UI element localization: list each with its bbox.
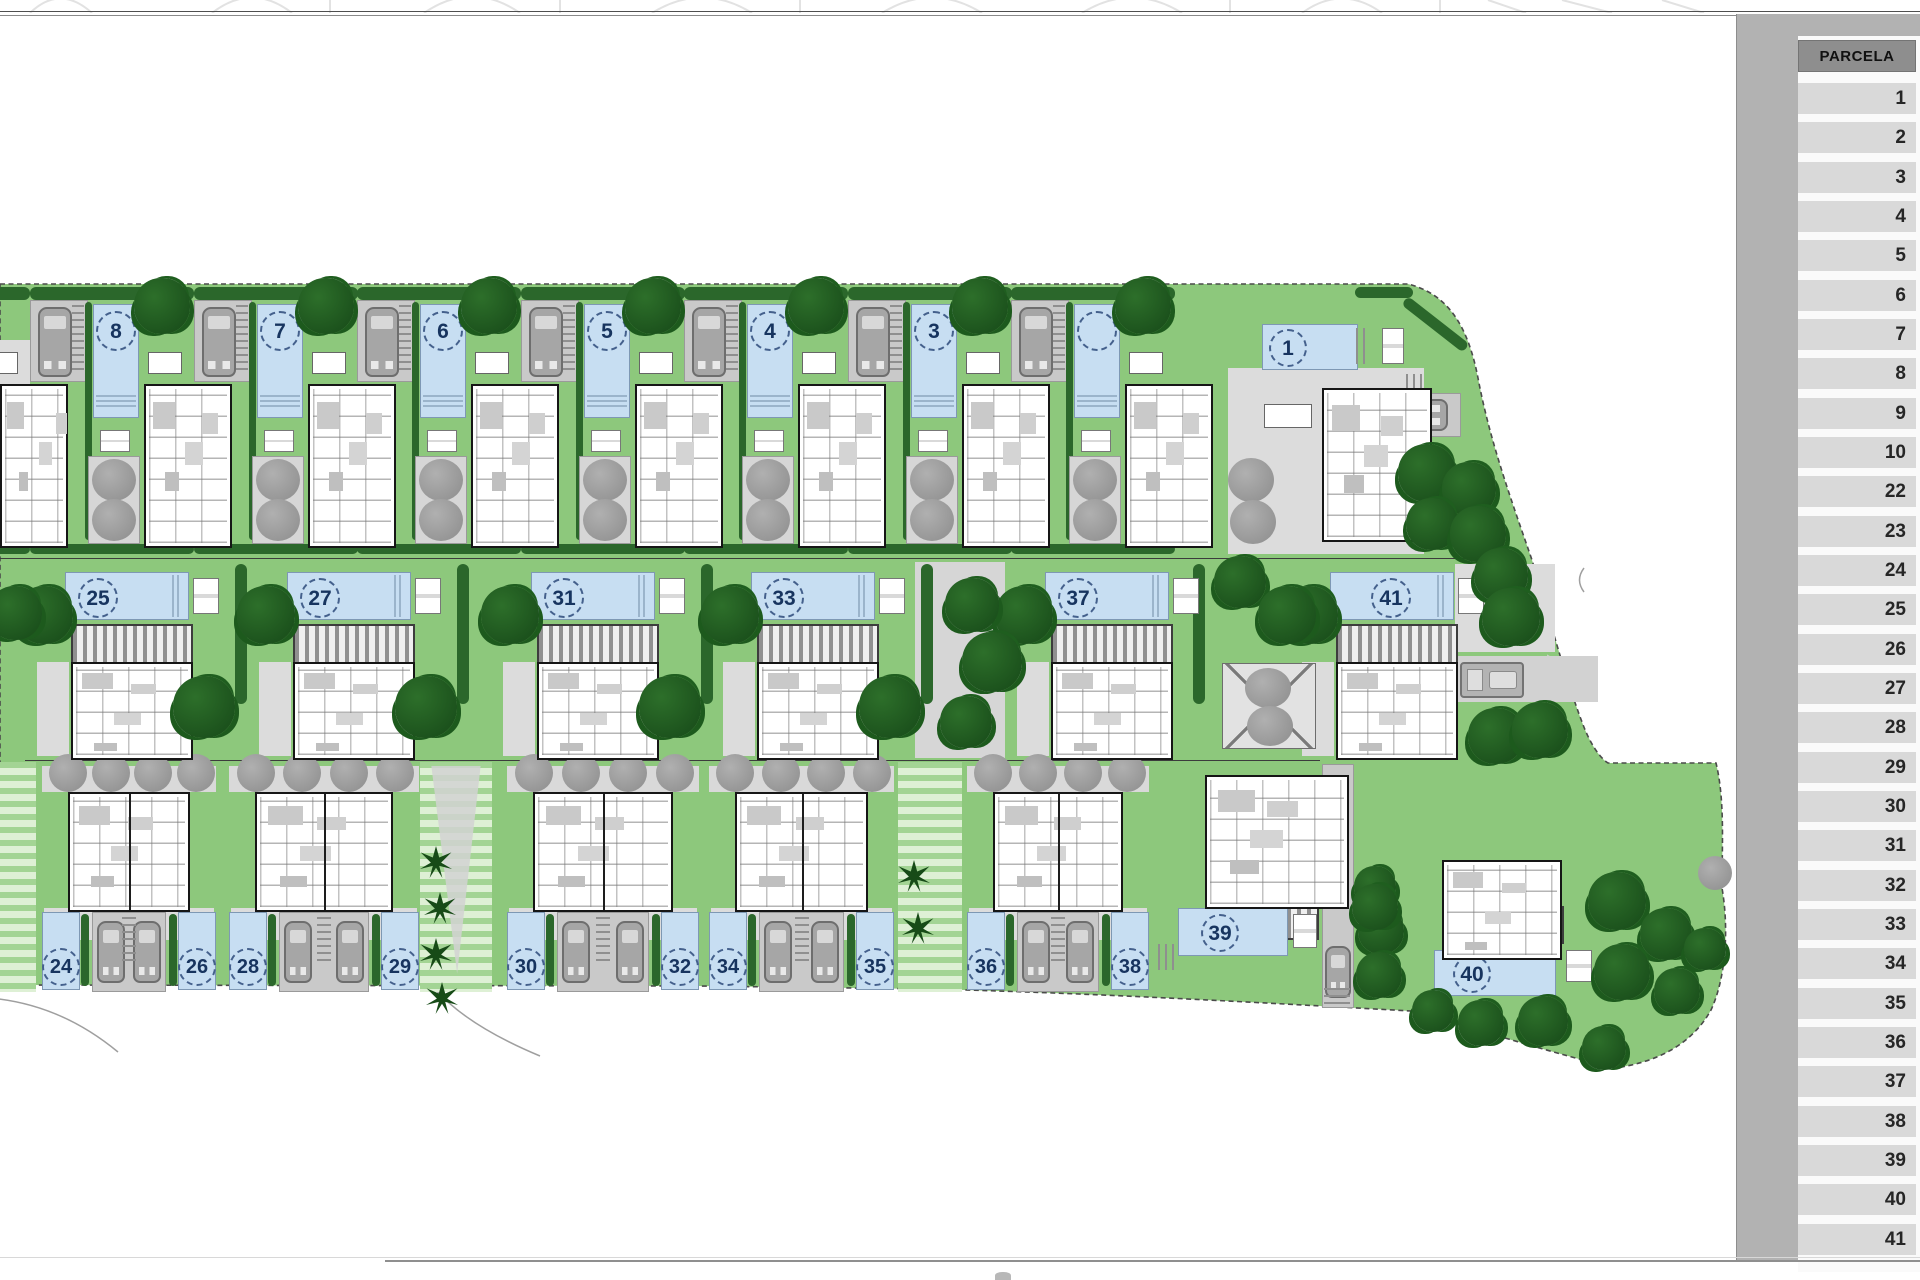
parcela-row: 36	[1798, 1027, 1916, 1058]
cutoff-mark	[995, 1272, 1011, 1280]
parcel-number-badge: 39	[1201, 914, 1239, 952]
hedge	[847, 914, 855, 986]
tree-icon	[1684, 928, 1726, 970]
parcel-number-badge: 5	[587, 311, 627, 351]
garden-table-icon	[802, 352, 836, 374]
parcela-value: 41	[1885, 1229, 1906, 1251]
house-floorplan	[533, 792, 673, 912]
parcela-row: 26	[1798, 634, 1916, 665]
parcela-value: 22	[1885, 481, 1906, 503]
gray-tree-icon	[256, 459, 300, 501]
pool: 38	[1111, 912, 1149, 990]
parcela-row: 32	[1798, 870, 1916, 901]
stairs	[726, 305, 738, 375]
parcela-value: 24	[1885, 560, 1906, 582]
parcel-number-badge: 8	[96, 311, 136, 351]
parcela-row: 23	[1798, 516, 1916, 547]
parcela-row: 37	[1798, 1066, 1916, 1097]
patio-court	[579, 456, 631, 544]
driveway	[30, 300, 88, 382]
parcel-number-badge: 7	[260, 311, 300, 351]
car-icon	[1066, 921, 1094, 983]
hedge	[1006, 914, 1014, 986]
pool: 6	[420, 304, 466, 418]
gray-tree-icon	[92, 499, 136, 541]
parcela-row: 28	[1798, 712, 1916, 743]
parcela-value: 4	[1895, 206, 1906, 228]
pool: 3	[911, 304, 957, 418]
parcel-pair-36-38: 36 38	[965, 762, 1151, 990]
pool: 7	[257, 304, 303, 418]
tree-icon	[1512, 702, 1568, 758]
house-floorplan	[68, 792, 190, 912]
parcel-number-badge: 35	[856, 948, 894, 986]
garden-table-icon	[0, 352, 18, 374]
parcela-row: 7	[1798, 319, 1916, 350]
car-icon	[284, 921, 312, 983]
parcela-value: 33	[1885, 914, 1906, 936]
parcela-row: 38	[1798, 1106, 1916, 1137]
gray-tree-icon	[1247, 706, 1293, 746]
car-icon	[616, 921, 644, 983]
tree-icon	[1412, 990, 1454, 1032]
driveway	[759, 912, 844, 992]
gray-tree-icon	[1073, 499, 1117, 541]
house-floorplan	[0, 384, 68, 548]
parcela-row: 2	[1798, 122, 1916, 153]
parcela-value: 26	[1885, 639, 1906, 661]
gray-tree-icon	[910, 499, 954, 541]
gray-tree-icon	[256, 499, 300, 541]
garden-table-icon	[1264, 404, 1312, 428]
house-floorplan	[144, 384, 232, 548]
sun-lounger-icon	[659, 578, 685, 614]
parcela-row: 6	[1798, 280, 1916, 311]
parcela-value: 37	[1885, 1071, 1906, 1093]
driveway	[92, 912, 166, 992]
pool: 1	[1262, 324, 1358, 370]
parcel-number-badge: 41	[1371, 578, 1411, 618]
parcela-header: PARCELA	[1798, 40, 1916, 72]
parcela-value: 40	[1885, 1189, 1906, 1211]
driveway	[194, 300, 252, 382]
garden-table-icon	[639, 352, 673, 374]
car-icon	[202, 307, 236, 377]
pergola	[537, 624, 659, 664]
gray-tree-icon	[746, 499, 790, 541]
frame-line	[385, 1260, 1920, 1262]
parcel-lot-33: 33	[711, 560, 933, 760]
tree-icon	[1356, 952, 1402, 998]
pool: 25	[65, 572, 189, 620]
hedge	[0, 287, 30, 300]
parcela-value: 34	[1885, 953, 1906, 975]
parcela-value: 7	[1895, 324, 1906, 346]
tree-icon	[1582, 1026, 1626, 1070]
pool: 34	[709, 912, 747, 990]
parcela-row: 29	[1798, 752, 1916, 783]
tree-icon	[859, 676, 921, 738]
tree-icon	[1352, 884, 1398, 930]
car-icon	[97, 921, 125, 983]
tree-icon	[1518, 996, 1568, 1046]
parcel-lot-31: 31	[491, 560, 713, 760]
stairs	[1053, 305, 1065, 375]
terrace	[1017, 662, 1049, 756]
gray-tree-icon	[746, 459, 790, 501]
hedge	[546, 914, 554, 986]
party-wall	[129, 794, 131, 910]
parcela-value: 28	[1885, 717, 1906, 739]
parcel-lot-27: 27	[247, 560, 469, 760]
sun-lounger-icon	[918, 430, 948, 452]
gray-tree-icon	[583, 459, 627, 501]
parcela-row: 24	[1798, 555, 1916, 586]
parcel-number-badge: 28	[229, 948, 267, 986]
driveway	[521, 300, 579, 382]
parcela-row: 22	[1798, 476, 1916, 507]
sun-lounger-icon	[591, 430, 621, 452]
outdoor-kitchen-icon	[1566, 950, 1592, 982]
frame-line	[0, 1257, 1920, 1258]
house-floorplan	[1336, 662, 1458, 760]
parcela-row: 5	[1798, 240, 1916, 271]
stairs	[596, 917, 610, 961]
pergola	[71, 624, 193, 664]
tree-icon	[945, 578, 999, 632]
patio-court	[1069, 456, 1121, 544]
parcela-row: 8	[1798, 358, 1916, 389]
parcela-value: 30	[1885, 796, 1906, 818]
tree-icon	[1482, 588, 1540, 646]
driveway	[1017, 912, 1099, 992]
parcel-number-badge: 29	[381, 948, 419, 986]
pool: 29	[381, 912, 419, 990]
house-floorplan	[1205, 775, 1349, 909]
car-icon	[1019, 307, 1053, 377]
driveway	[357, 300, 415, 382]
tree-icon	[962, 632, 1022, 692]
gray-tree-icon	[237, 754, 275, 792]
pool: 31	[531, 572, 655, 620]
gray-tree-icon	[1245, 668, 1291, 708]
parcel-lot-partial	[0, 284, 30, 558]
pool: 32	[661, 912, 699, 990]
pool: 28	[229, 912, 267, 990]
parcel-pair-30-32: 30 32	[505, 762, 701, 990]
parcela-value: 6	[1895, 285, 1906, 307]
parcela-row: 4	[1798, 201, 1916, 232]
parcel-number-badge: 25	[78, 578, 118, 618]
tree-icon	[237, 586, 295, 644]
parcela-value: 36	[1885, 1032, 1906, 1054]
pergola	[1051, 624, 1173, 664]
tree-icon	[461, 278, 517, 334]
stairs	[1158, 944, 1178, 970]
sun-lounger-icon	[415, 578, 441, 614]
tree-icon	[1458, 1000, 1504, 1046]
car-icon	[38, 307, 72, 377]
gray-tree-icon	[656, 754, 694, 792]
sun-lounger-icon	[193, 578, 219, 614]
patio-court	[88, 456, 140, 544]
parcel-number-badge: 38	[1111, 948, 1149, 986]
tree-icon	[1588, 872, 1646, 930]
parcel-number-badge: 6	[423, 311, 463, 351]
outdoor-kitchen-icon	[1382, 328, 1404, 364]
party-wall	[1058, 794, 1060, 910]
pool: 39	[1178, 908, 1288, 956]
parcela-row: 31	[1798, 830, 1916, 861]
tree-icon	[1214, 556, 1266, 608]
terrace	[37, 662, 69, 756]
sun-lounger-icon	[1081, 430, 1111, 452]
tree-icon	[788, 278, 844, 334]
parcela-value: 23	[1885, 521, 1906, 543]
stairs	[72, 305, 84, 375]
parcel-number-badge: 37	[1058, 578, 1098, 618]
terrace	[723, 662, 755, 756]
house-floorplan	[735, 792, 868, 912]
hedge	[372, 914, 380, 986]
car-icon	[764, 921, 792, 983]
parcel-number-badge: 26	[178, 948, 216, 986]
parcela-row: 27	[1798, 673, 1916, 704]
tree-icon	[625, 278, 681, 334]
parcel-number-badge: 24	[42, 948, 80, 986]
house-floorplan	[1051, 662, 1173, 760]
gray-tree-icon	[910, 459, 954, 501]
patio-court	[415, 456, 467, 544]
sun-lounger-icon	[100, 430, 130, 452]
hedge	[921, 564, 933, 704]
parcela-row: 9	[1798, 398, 1916, 429]
parcela-row: 40	[1798, 1184, 1916, 1215]
garden-table-icon	[148, 352, 182, 374]
pool: 30	[507, 912, 545, 990]
hedge	[1102, 914, 1110, 986]
tree-icon	[298, 278, 354, 334]
stairs	[1051, 917, 1065, 961]
car-icon	[1022, 921, 1050, 983]
parcela-panel: PARCELA 1 2 3 4 5 6 7 8 9 10 22 23 24 25…	[1736, 14, 1920, 1262]
outdoor-kitchen-icon	[1293, 914, 1317, 948]
parcel-lot-25: 25	[25, 560, 247, 760]
car-icon	[336, 921, 364, 983]
car-icon	[529, 307, 563, 377]
parcel-number-badge: 36	[967, 948, 1005, 986]
parcela-row: 34	[1798, 948, 1916, 979]
tree-icon	[1594, 944, 1650, 1000]
party-wall	[603, 794, 605, 910]
stairs	[890, 305, 902, 375]
parcela-value: 2	[1895, 127, 1906, 149]
parcela-row: 39	[1798, 1145, 1916, 1176]
house-floorplan	[993, 792, 1123, 912]
parcela-row: 35	[1798, 988, 1916, 1019]
parcela-value: 9	[1895, 403, 1906, 425]
parcela-value: 8	[1895, 363, 1906, 385]
house-floorplan	[255, 792, 393, 912]
pool: 4	[747, 304, 793, 418]
parcela-value: 32	[1885, 875, 1906, 897]
driveway	[1011, 300, 1069, 382]
hedge	[81, 914, 89, 986]
gray-tree-icon	[1228, 458, 1274, 502]
sun-lounger-icon	[754, 430, 784, 452]
pool: 27	[287, 572, 411, 620]
car-icon	[811, 921, 839, 983]
pool-steps	[1356, 328, 1368, 364]
tree-icon	[1115, 278, 1171, 334]
tree-icon	[952, 278, 1008, 334]
tree-icon	[701, 586, 759, 644]
pool: 37	[1045, 572, 1169, 620]
hedge	[268, 914, 276, 986]
tree-icon	[481, 586, 539, 644]
parcela-value: 38	[1885, 1111, 1906, 1133]
hedge	[169, 914, 177, 986]
lot-row-line	[0, 558, 1520, 559]
pool: 26	[178, 912, 216, 990]
parcela-value: 25	[1885, 599, 1906, 621]
parcela-value: 10	[1885, 442, 1906, 464]
parcel-lot-37: 37	[1005, 560, 1205, 760]
parcela-value: 29	[1885, 757, 1906, 779]
tree-icon	[940, 696, 992, 748]
tree-icon	[395, 676, 457, 738]
parcel-number-badge: 33	[764, 578, 804, 618]
parcel-number-badge: 34	[709, 948, 747, 986]
sun-lounger-icon	[879, 578, 905, 614]
parcela-value: 3	[1895, 167, 1906, 189]
pool: 35	[856, 912, 894, 990]
parcela-value: 27	[1885, 678, 1906, 700]
pool: 8	[93, 304, 139, 418]
tree-icon	[173, 676, 235, 738]
house-floorplan	[798, 384, 886, 548]
parcel-number-badge: 4	[750, 311, 790, 351]
parcel-number-badge: 27	[300, 578, 340, 618]
site-plan-page: 8 7 6 5	[0, 0, 1920, 1280]
stairs	[563, 305, 575, 375]
pergola	[293, 624, 415, 664]
patio-court	[252, 456, 304, 544]
house-floorplan	[471, 384, 559, 548]
pool	[1074, 304, 1120, 418]
stairs	[317, 917, 331, 961]
hedge	[1355, 287, 1413, 298]
car-icon	[133, 921, 161, 983]
tree-icon	[1654, 968, 1700, 1014]
pergola	[1336, 624, 1458, 664]
gray-tree-icon	[419, 459, 463, 501]
parcela-value: 1	[1895, 88, 1906, 110]
hedge	[652, 914, 660, 986]
car-icon	[856, 307, 890, 377]
house-floorplan	[962, 384, 1050, 548]
stairs	[399, 305, 411, 375]
car-icon	[365, 307, 399, 377]
garden-table-icon	[1129, 352, 1163, 374]
pool: 5	[584, 304, 630, 418]
car-icon	[562, 921, 590, 983]
sun-lounger-icon	[264, 430, 294, 452]
parcel-number-badge: 3	[914, 311, 954, 351]
patio-court	[906, 456, 958, 544]
car-icon	[692, 307, 726, 377]
driveway	[848, 300, 906, 382]
terrace	[503, 662, 535, 756]
stairs	[236, 305, 248, 375]
stairs	[122, 917, 136, 961]
courtyard	[1222, 663, 1316, 749]
parcela-row: 30	[1798, 791, 1916, 822]
gray-tree-icon	[583, 499, 627, 541]
parcel-pair-24-26: 24 26	[40, 762, 218, 990]
gray-tree-icon	[92, 459, 136, 501]
pool: 41	[1330, 572, 1454, 620]
parcela-row: 33	[1798, 909, 1916, 940]
tree-icon	[134, 278, 190, 334]
parcela-row: 10	[1798, 437, 1916, 468]
house-floorplan	[1125, 384, 1213, 548]
parcela-row: 25	[1798, 594, 1916, 625]
pool: 33	[751, 572, 875, 620]
pergola	[757, 624, 879, 664]
garden-table-icon	[966, 352, 1000, 374]
driveway	[684, 300, 742, 382]
party-wall	[802, 794, 804, 910]
garden-table-icon	[475, 352, 509, 374]
parcela-row: 41	[1798, 1224, 1916, 1255]
stairs	[795, 917, 809, 961]
house-floorplan	[1442, 860, 1562, 960]
driveway	[279, 912, 369, 992]
gray-tree-icon	[1698, 856, 1732, 890]
truck-icon	[1460, 662, 1524, 698]
pool: 24	[42, 912, 80, 990]
party-wall	[324, 794, 326, 910]
patio-court	[742, 456, 794, 544]
parcel-pair-28-29: 28 29	[227, 762, 421, 990]
sun-lounger-icon	[1173, 578, 1199, 614]
house-floorplan	[635, 384, 723, 548]
sun-lounger-icon	[427, 430, 457, 452]
parcel-number-badge: 32	[661, 948, 699, 986]
grass-paving-strip	[898, 762, 962, 992]
pool: 36	[967, 912, 1005, 990]
gray-tree-icon	[1230, 500, 1276, 544]
hedge	[748, 914, 756, 986]
parcela-value: 35	[1885, 993, 1906, 1015]
parcel-number-badge: 30	[507, 948, 545, 986]
parcela-value: 39	[1885, 1150, 1906, 1172]
parcel-pair-34-35: 34 35	[707, 762, 896, 990]
parcela-value: 5	[1895, 245, 1906, 267]
driveway	[557, 912, 649, 992]
parcel-number-badge: 31	[544, 578, 584, 618]
hedge	[457, 564, 469, 704]
tree-icon	[639, 676, 701, 738]
parcel-number-badge: 1	[1269, 329, 1307, 367]
terrace	[259, 662, 291, 756]
parcel-number-badge: 40	[1453, 955, 1491, 993]
parcela-row: 1	[1798, 83, 1916, 114]
garden-table-icon	[312, 352, 346, 374]
parcela-value: 31	[1885, 835, 1906, 857]
grass-paving-strip	[0, 762, 36, 992]
